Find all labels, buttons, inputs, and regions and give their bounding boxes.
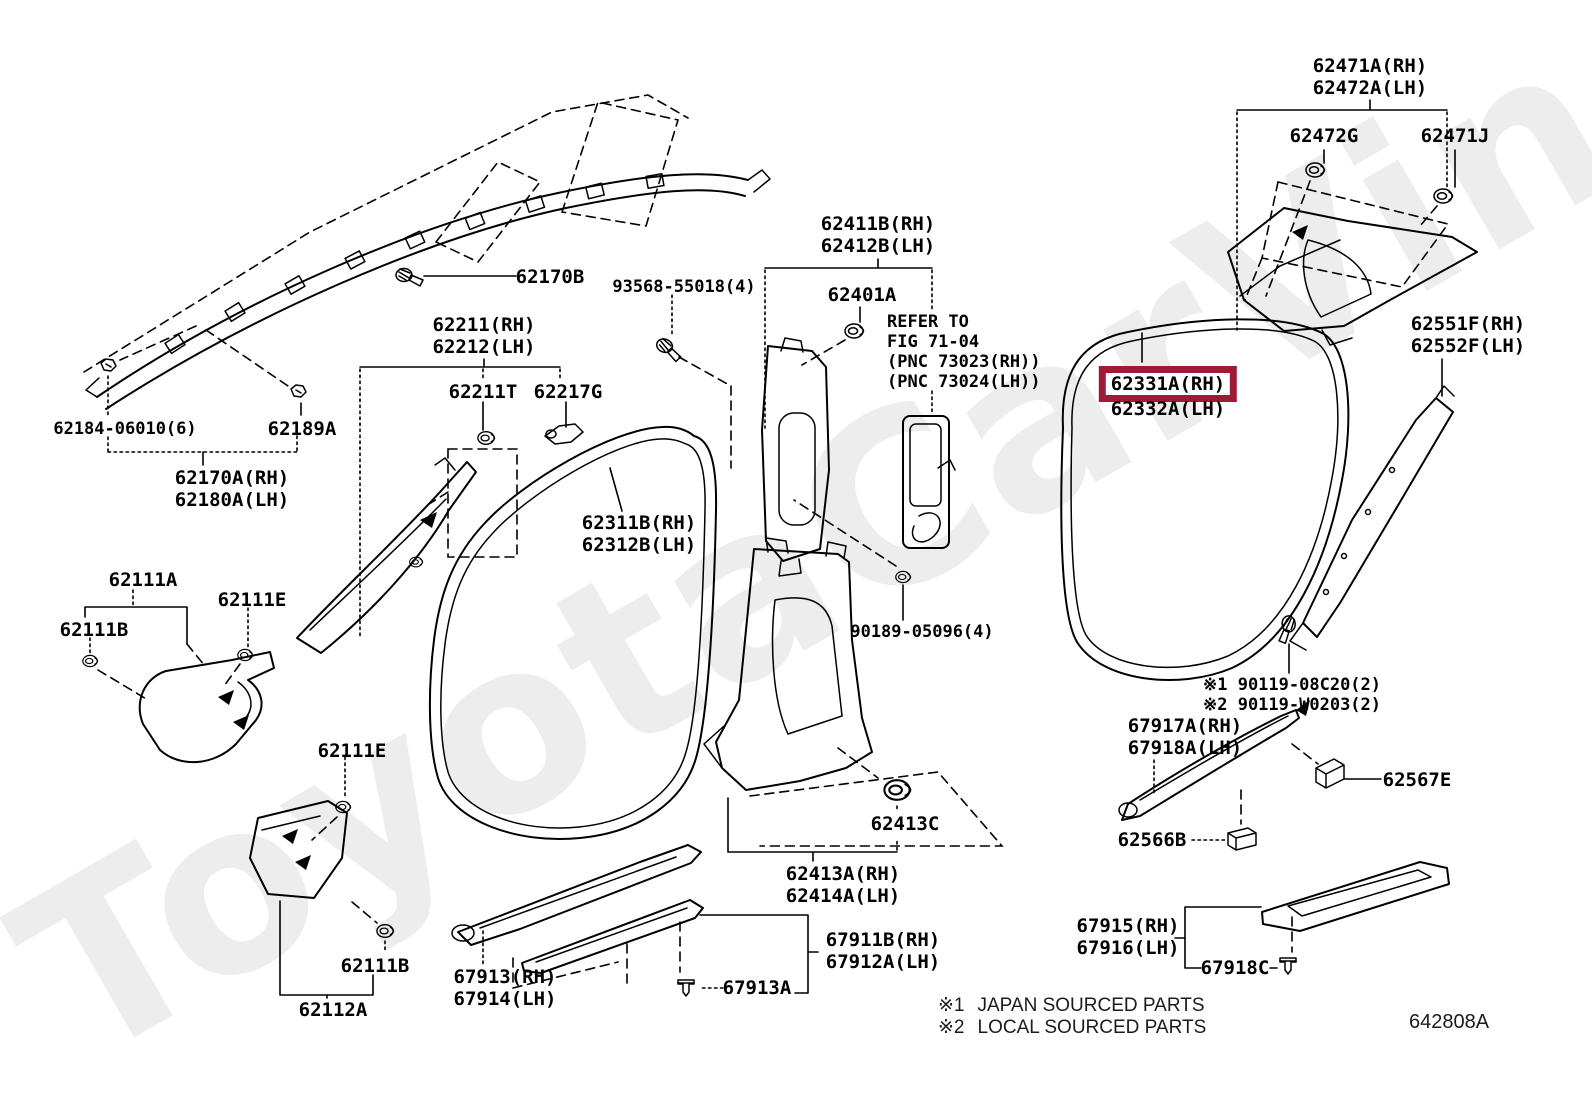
part-label-62111E-1: 62111E xyxy=(218,589,287,611)
part-label-62189A: 62189A xyxy=(268,418,337,440)
note-local-sourced: ※2LOCAL SOURCED PARTS xyxy=(938,1017,1206,1039)
part-label-62112A: 62112A xyxy=(299,999,368,1021)
part-label-67913: 67913(RH)67914(LH) xyxy=(454,966,557,1010)
part-label-62413C: 62413C xyxy=(871,813,940,835)
part-label-62211T: 62211T xyxy=(449,381,518,403)
part-label-62170B: 62170B xyxy=(516,266,585,288)
footer-notes: ※1JAPAN SOURCED PARTS ※2LOCAL SOURCED PA… xyxy=(938,995,1206,1038)
note-japan-sourced: ※1JAPAN SOURCED PARTS xyxy=(938,995,1206,1017)
part-label-62111B-1: 62111B xyxy=(60,619,129,641)
part-label-62471A: 62471A(RH)62472A(LH) xyxy=(1313,55,1427,99)
part-label-67915: 67915(RH)67916(LH) xyxy=(1077,915,1180,959)
part-label-62566B: 62566B xyxy=(1118,829,1187,851)
part-label-67913A: 67913A xyxy=(723,977,792,999)
part-label-67917A: 67917A(RH)67918A(LH) xyxy=(1128,715,1242,759)
part-label-62311B: 62311B(RH)62312B(LH) xyxy=(582,512,696,556)
part-label-62170A: 62170A(RH)62180A(LH) xyxy=(175,467,289,511)
part-label-90189-05096: 90189-05096(4) xyxy=(850,622,993,642)
part-label-62471J: 62471J xyxy=(1421,125,1490,147)
parts-diagram: ToyotaCarVine.ru xyxy=(0,0,1592,1099)
note-text: LOCAL SOURCED PARTS xyxy=(978,1017,1207,1038)
labels-layer: 62471A(RH)62472A(LH)62472G62471J62551F(R… xyxy=(0,0,1592,1099)
part-label-62217G: 62217G xyxy=(534,381,603,403)
part-label-62411B: 62411B(RH)62412B(LH) xyxy=(821,213,935,257)
note-text: JAPAN SOURCED PARTS xyxy=(978,995,1205,1016)
part-label-67918C: 67918C xyxy=(1201,957,1270,979)
part-label-62551F: 62551F(RH)62552F(LH) xyxy=(1411,313,1525,357)
part-label-62472G: 62472G xyxy=(1290,125,1359,147)
part-label-62184-06010: 62184-06010(6) xyxy=(53,419,196,439)
part-label-90119-notes: ※1 90119-08C20(2)※2 90119-W0203(2) xyxy=(1203,675,1381,715)
part-label-62331A: 62331A(RH) xyxy=(1099,366,1237,402)
part-label-62111B-2: 62111B xyxy=(341,955,410,977)
part-label-67911B: 67911B(RH)67912A(LH) xyxy=(826,929,940,973)
diagram-number: 642808A xyxy=(1409,1011,1489,1034)
part-label-62413A: 62413A(RH)62414A(LH) xyxy=(786,863,900,907)
part-label-62401A: 62401A xyxy=(828,284,897,306)
part-label-93568-55018: 93568-55018(4) xyxy=(612,277,755,297)
reference-mark: ※2 xyxy=(938,1017,965,1038)
part-label-62111A: 62111A xyxy=(109,569,178,591)
part-label-62332A: 62332A(LH) xyxy=(1111,398,1225,420)
part-label-62567E: 62567E xyxy=(1383,769,1452,791)
part-label-refer-fig-71-04: REFER TOFIG 71-04(PNC 73023(RH))(PNC 730… xyxy=(887,312,1041,392)
part-label-62111E-2: 62111E xyxy=(318,740,387,762)
part-label-62211: 62211(RH)62212(LH) xyxy=(433,314,536,358)
reference-mark: ※1 xyxy=(938,995,965,1016)
